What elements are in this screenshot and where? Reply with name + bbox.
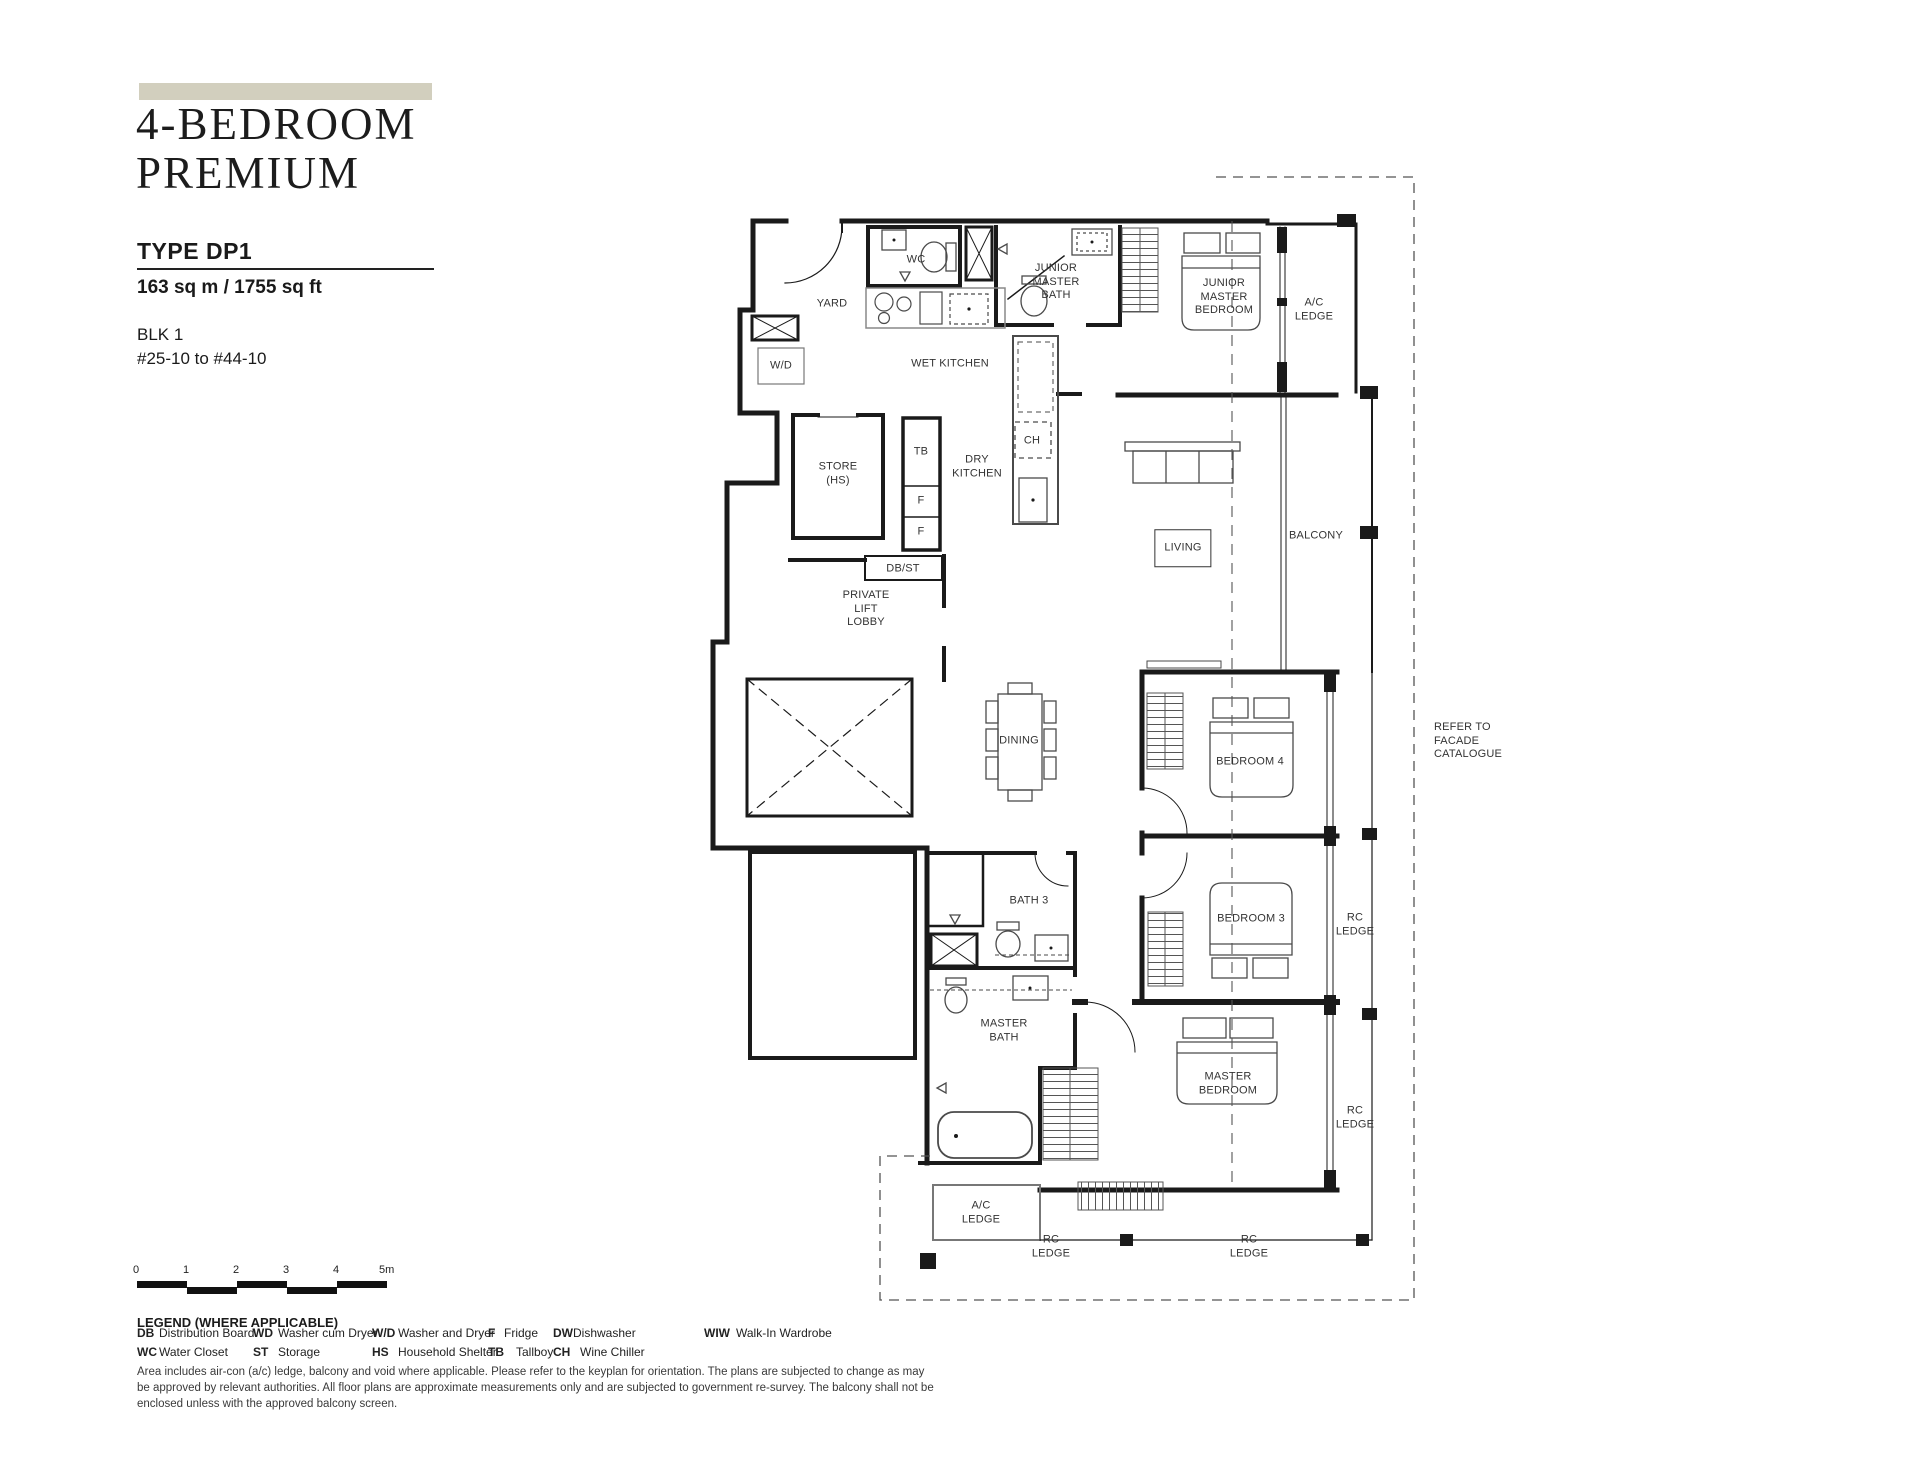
accent-bar xyxy=(139,83,432,100)
legend-term: Fridge xyxy=(504,1326,538,1340)
legend-term: Washer cum Dryer xyxy=(278,1326,378,1340)
legend-entry: STStorage xyxy=(253,1345,320,1359)
room-label-yard: YARD xyxy=(817,297,848,311)
legend-term: Tallboy xyxy=(516,1345,553,1359)
legend-entry: W/DWasher and Dryer xyxy=(372,1326,495,1340)
room-label-wet-kitchen: WET KITCHEN xyxy=(911,357,989,371)
legend-entry: CHWine Chiller xyxy=(553,1345,645,1359)
legend-abbr: CH xyxy=(553,1345,580,1359)
room-label-junior-master-bath: JUNIOR MASTER BATH xyxy=(1032,262,1079,303)
legend-abbr: W/D xyxy=(372,1326,398,1340)
legend-term: Distribution Board xyxy=(159,1326,254,1340)
room-label-bedroom-3: BEDROOM 3 xyxy=(1217,912,1285,926)
room-label-wc: WC xyxy=(907,253,926,267)
scale-tick: 1 xyxy=(183,1264,189,1276)
room-label-rc-ledge-right-2: RC LEDGE xyxy=(1336,1105,1374,1132)
room-label-bedroom-4: BEDROOM 4 xyxy=(1216,755,1284,769)
legend-abbr: F xyxy=(488,1326,504,1340)
legend-entry: WCWater Closet xyxy=(137,1345,228,1359)
room-label-bath-3: BATH 3 xyxy=(1010,894,1049,908)
room-label-junior-master-bedroom: JUNIOR MASTER BEDROOM xyxy=(1195,277,1253,318)
scale-tick: 5m xyxy=(379,1264,394,1276)
legend-abbr: WIW xyxy=(704,1326,736,1340)
room-label-refer-facade: REFER TO FACADE CATALOGUE xyxy=(1434,721,1502,762)
divider-rule xyxy=(137,268,434,270)
scale-tick: 2 xyxy=(233,1264,239,1276)
legend-term: Walk-In Wardrobe xyxy=(736,1326,832,1340)
room-label-ac-ledge-bottom: A/C LEDGE xyxy=(962,1200,1000,1227)
legend-abbr: TB xyxy=(488,1345,516,1359)
room-label-living: LIVING xyxy=(1154,529,1211,567)
unit-type-label: TYPE DP1 xyxy=(137,238,252,265)
room-label-master-bedroom: MASTER BEDROOM xyxy=(1199,1071,1257,1098)
scale-tick: 0 xyxy=(133,1264,139,1276)
legend-abbr: ST xyxy=(253,1345,278,1359)
legend-entry: DBDistribution Board xyxy=(137,1326,254,1340)
room-label-dry-kitchen: DRY KITCHEN xyxy=(952,454,1002,481)
unit-area-label: 163 sq m / 1755 sq ft xyxy=(137,277,322,299)
legend-term: Water Closet xyxy=(159,1345,228,1359)
wardrobe-hatching xyxy=(1043,228,1183,1210)
legend-entry: DWDishwasher xyxy=(553,1326,636,1340)
legend-term: Wine Chiller xyxy=(580,1345,645,1359)
room-label-private-lift-lobby: PRIVATE LIFT LOBBY xyxy=(843,589,890,630)
legend-abbr: HS xyxy=(372,1345,398,1359)
legend-term: Storage xyxy=(278,1345,320,1359)
legend-term: Washer and Dryer xyxy=(398,1326,495,1340)
legend-term: Household Shelter xyxy=(398,1345,497,1359)
legend-entry: TBTallboy xyxy=(488,1345,553,1359)
legend-entry: WIWWalk-In Wardrobe xyxy=(704,1326,832,1340)
room-label-wine-chiller: CH xyxy=(1024,434,1040,448)
room-label-db-st: DB/ST xyxy=(886,562,919,576)
legend-term: Dishwasher xyxy=(573,1326,636,1340)
scale-segment xyxy=(137,1281,187,1288)
room-label-balcony: BALCONY xyxy=(1289,529,1343,543)
floor-plan-page: { "header": { "category": "4-BEDROOM\nPR… xyxy=(0,0,1920,1484)
block-label: BLK 1 xyxy=(137,325,183,345)
room-label-rc-ledge-bottom-1: RC LEDGE xyxy=(1032,1234,1070,1261)
legend-entry: WDWasher cum Dryer xyxy=(253,1326,378,1340)
legend-entry: HSHousehold Shelter xyxy=(372,1345,497,1359)
room-label-tallboy: TB xyxy=(914,445,928,459)
room-label-rc-ledge-right-1: RC LEDGE xyxy=(1336,912,1374,939)
legend-abbr: DW xyxy=(553,1326,573,1340)
room-label-dining: DINING xyxy=(999,734,1039,748)
scale-segment xyxy=(337,1281,387,1288)
room-label-fridge-2: F xyxy=(918,525,925,539)
room-label-rc-ledge-bottom-2: RC LEDGE xyxy=(1230,1234,1268,1261)
room-label-fridge-1: F xyxy=(918,494,925,508)
legend-abbr: DB xyxy=(137,1326,159,1340)
scale-segment xyxy=(287,1287,337,1294)
page-title: 4-BEDROOM PREMIUM xyxy=(136,100,417,198)
unit-range-label: #25-10 to #44-10 xyxy=(137,349,267,369)
room-label-ac-ledge-top: A/C LEDGE xyxy=(1295,297,1333,324)
scale-segment xyxy=(187,1287,237,1294)
scale-tick: 3 xyxy=(283,1264,289,1276)
scale-segment xyxy=(237,1281,287,1288)
disclaimer-text: Area includes air-con (a/c) ledge, balco… xyxy=(137,1364,934,1412)
legend-abbr: WC xyxy=(137,1345,159,1359)
scale-tick: 4 xyxy=(333,1264,339,1276)
room-label-store-hs: STORE (HS) xyxy=(819,461,858,488)
floor-plan-drawing xyxy=(0,0,1920,1484)
legend-entry: FFridge xyxy=(488,1326,538,1340)
room-label-washer-dryer: W/D xyxy=(770,359,792,373)
legend-abbr: WD xyxy=(253,1326,278,1340)
room-label-master-bath: MASTER BATH xyxy=(980,1018,1027,1045)
